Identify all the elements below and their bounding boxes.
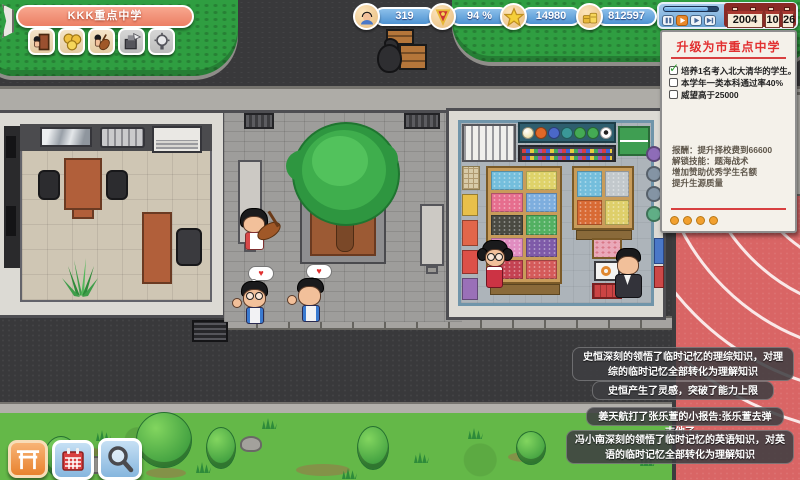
air-conditioner-slats [156,140,198,149]
office-chair [38,170,60,200]
goods-box [462,194,478,216]
quest-objective: 威望高于25000 [669,89,795,101]
door-person-icon [32,32,52,52]
pager-dot[interactable] [696,216,705,225]
heart-bubble: ♥ [306,264,332,279]
play-button[interactable] [676,15,688,26]
office-desk [64,158,102,210]
search-button[interactable] [98,438,142,480]
heart-bubble: ♥ [248,266,274,281]
school-gate-icon [15,447,41,471]
idea-bulb-icon [152,32,172,52]
store-bookcase [462,124,516,162]
store-man[interactable] [610,248,644,300]
goods-strips [518,145,616,162]
arts-button[interactable] [88,28,115,55]
quest-reward-line: 增加赞助优秀学生名额 [672,167,796,177]
office-chair [106,170,128,200]
divider [671,57,786,59]
office-table [142,212,172,284]
student-avatar-icon [353,3,380,30]
side-room [4,126,20,268]
wall-goods-red [654,266,664,288]
green-ball [587,127,599,139]
log-message: 史恒产生了灵感，突破了能力上限 [592,381,774,400]
money-icon [576,3,603,30]
magnifier-icon [105,444,135,474]
plaza-vent [404,113,440,129]
checkbox [669,90,678,99]
ball-shelf [518,122,616,143]
guitar-girl[interactable] [238,208,278,258]
wall-goods-blue [654,238,664,264]
calendar-year: 2004 [727,11,763,28]
pager-dot[interactable] [670,216,679,225]
glasses [255,292,263,300]
fame-count: 14980 [521,7,581,26]
store-girl[interactable] [476,240,512,294]
dirt-patch [146,468,186,478]
quest-panel: 升级为市重点中学 培养1名考入北大清华的学生。 本学年一类本科通过率40% 威望… [660,30,797,233]
pennant-icon [429,3,456,30]
potted-plant [60,256,100,298]
school-gate-button[interactable] [8,440,48,478]
trash-bag [377,44,402,73]
money-count: 812597 [596,7,657,26]
quest-reward-line: 解锁技能：题海战术 [672,156,796,166]
calendar-month: 10 [765,11,780,28]
student-walking[interactable]: ♥ [286,264,332,322]
school-name-banner[interactable]: KKK重点中学 [16,5,194,28]
research-button[interactable] [148,28,175,55]
glasses [495,253,503,261]
basketball [535,127,547,139]
game-screen: ♥ ♥ [0,0,800,480]
glasses [487,253,495,261]
bush [357,426,389,470]
fast-button[interactable] [690,15,702,26]
pause-button[interactable] [662,15,674,26]
plaza-vent [244,113,274,129]
quest-pager [670,216,718,225]
blue-ball [548,127,560,139]
log-message: 姜天航打了张乐萱的小报告:张乐萱去弹吉他了。 [586,407,784,426]
checkbox-checked [669,66,678,75]
star-icon [500,3,527,30]
bench-foot [426,266,438,274]
produce-stand [572,166,634,230]
calendar: 2004 10 26 [724,3,796,27]
bush [136,412,192,468]
finance-button[interactable] [58,28,85,55]
printer-icon [122,32,142,52]
glasses [246,292,254,300]
divider [671,208,786,210]
print-button[interactable] [118,28,145,55]
quest-reward-line: 提升生源质量 [672,178,796,188]
small-grid-shelf [462,166,480,190]
radiator [100,127,145,148]
quest-reward-line: 报酬：提升择校费到66600 [672,145,796,155]
rock [240,436,262,452]
dirt-patch [296,464,350,476]
quest-objective: 培养1名考入北大清华的学生。 [669,65,795,77]
violin-student-icon [92,32,112,52]
crate [399,44,427,70]
calendar-icon [59,446,87,474]
admissions-button[interactable] [28,28,55,55]
calendar-button[interactable] [52,440,94,480]
office-armchair [176,228,202,266]
checkbox [669,78,678,87]
step-button[interactable] [704,15,716,26]
tree-foliage [312,136,368,186]
volleyball [522,127,534,139]
sewer-grate [192,320,228,342]
teal-ball [561,127,573,139]
pager-dot[interactable] [709,216,718,225]
quest-objective: 本学年一类本科通过率40% [669,77,795,89]
bush [516,431,546,465]
pager-dot[interactable] [683,216,692,225]
time-progress-fill [664,7,708,11]
bench [420,204,444,266]
log-message: 史恒深刻的领悟了临时记忆的理综知识，对理综的临时记忆全部转化为理解知识 [572,347,794,381]
speed-buttons [662,15,716,26]
log-message: 冯小南深刻的领悟了临时记忆的英语知识，对英语的临时记忆全部转化为理解知识 [566,430,794,464]
office-window [40,127,92,147]
bush [206,427,236,469]
soccer-ball [600,127,612,139]
students-count: 319 [374,7,435,26]
office-desk-drawer [72,208,94,219]
student-walking[interactable]: ♥ [232,266,278,324]
quest-title: 升级为市重点中学 [662,38,795,55]
green-ball [574,127,586,139]
calendar-day: 26 [782,11,794,28]
toolbar [28,28,175,55]
coins-icon [62,32,82,52]
